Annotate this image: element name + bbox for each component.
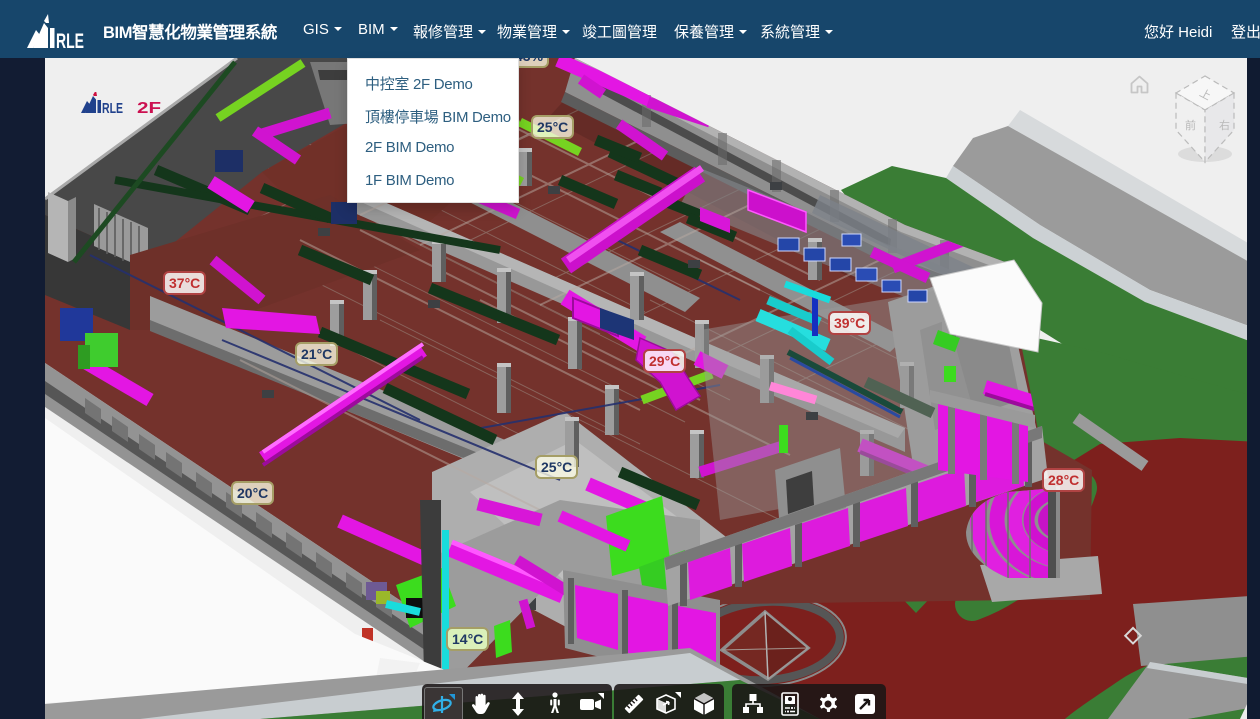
svg-text:2F: 2F	[137, 100, 161, 115]
svg-text:RLE: RLE	[56, 30, 84, 50]
svg-text:右: 右	[1219, 118, 1230, 132]
svg-text:RLE: RLE	[102, 100, 123, 115]
svg-text:前: 前	[1185, 118, 1196, 132]
